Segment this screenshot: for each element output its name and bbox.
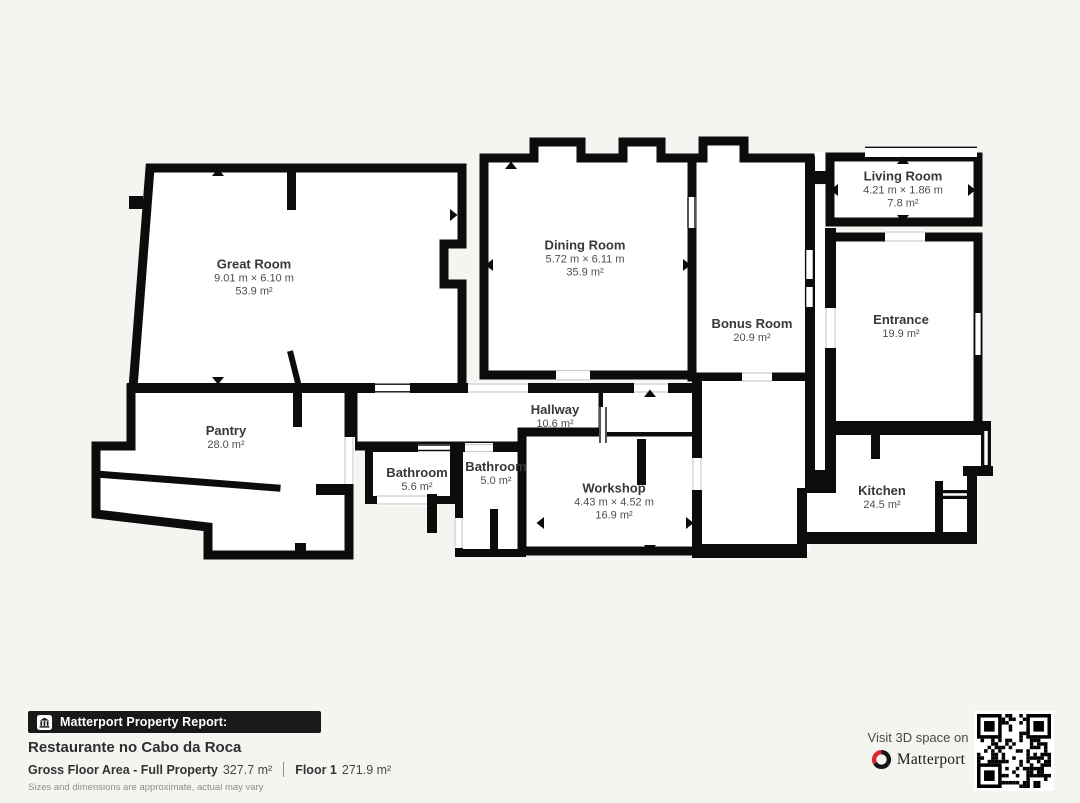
- room-label-bonus-room: Bonus Room 20.9 m²: [712, 317, 793, 345]
- room-pantry-floor: [96, 388, 349, 555]
- qr-code-pattern: [977, 714, 1051, 788]
- cta-text: Visit 3D space on: [850, 730, 986, 745]
- room-label-great-room: Great Room 9.01 m × 6.10 m 53.9 m²: [214, 257, 294, 299]
- gross-floor-area-label: Gross Floor Area - Full Property: [28, 763, 218, 777]
- room-label-living-room: Living Room 4.21 m × 1.86 m 7.8 m²: [863, 169, 943, 211]
- disclaimer-text: Sizes and dimensions are approximate, ac…: [28, 782, 264, 793]
- matterport-logo-icon: [871, 749, 892, 770]
- floor-area-value: 271.9 m²: [342, 763, 391, 777]
- report-bar-label: Matterport Property Report:: [60, 715, 227, 729]
- room-label-pantry: Pantry 28.0 m²: [206, 424, 246, 452]
- visit-3d-space-cta: Visit 3D space on Matterport: [850, 730, 986, 770]
- room-label-workshop: Workshop 4.43 m × 4.52 m 16.9 m²: [574, 481, 654, 523]
- stats-divider: [283, 762, 284, 777]
- room-label-bathroom-1: Bathroom 5.6 m²: [386, 466, 447, 494]
- floor-label: Floor 1: [295, 763, 337, 777]
- matterport-brand-name: Matterport: [897, 751, 965, 769]
- room-label-entrance: Entrance 19.9 m²: [873, 313, 929, 341]
- gross-floor-area-value: 327.7 m²: [223, 763, 272, 777]
- room-label-bathroom-2: Bathroom 5.0 m²: [465, 460, 526, 488]
- report-header-bar: Matterport Property Report:: [28, 711, 321, 733]
- qr-code: [974, 711, 1054, 791]
- property-name: Restaurante no Cabo da Roca: [28, 739, 241, 756]
- room-great-room-floor: [133, 168, 462, 388]
- room-label-hallway: Hallway 10.6 m²: [531, 403, 579, 431]
- matterport-floorplan-report: Great Room 9.01 m × 6.10 m 53.9 m² Dinin…: [0, 0, 1080, 803]
- room-label-dining-room: Dining Room 5.72 m × 6.11 m 35.9 m²: [545, 238, 626, 280]
- building-icon: [37, 715, 52, 730]
- floor-area-stats: Gross Floor Area - Full Property 327.7 m…: [28, 762, 391, 777]
- room-label-kitchen: Kitchen 24.5 m²: [858, 484, 906, 512]
- matterport-brand-row: Matterport: [850, 749, 986, 770]
